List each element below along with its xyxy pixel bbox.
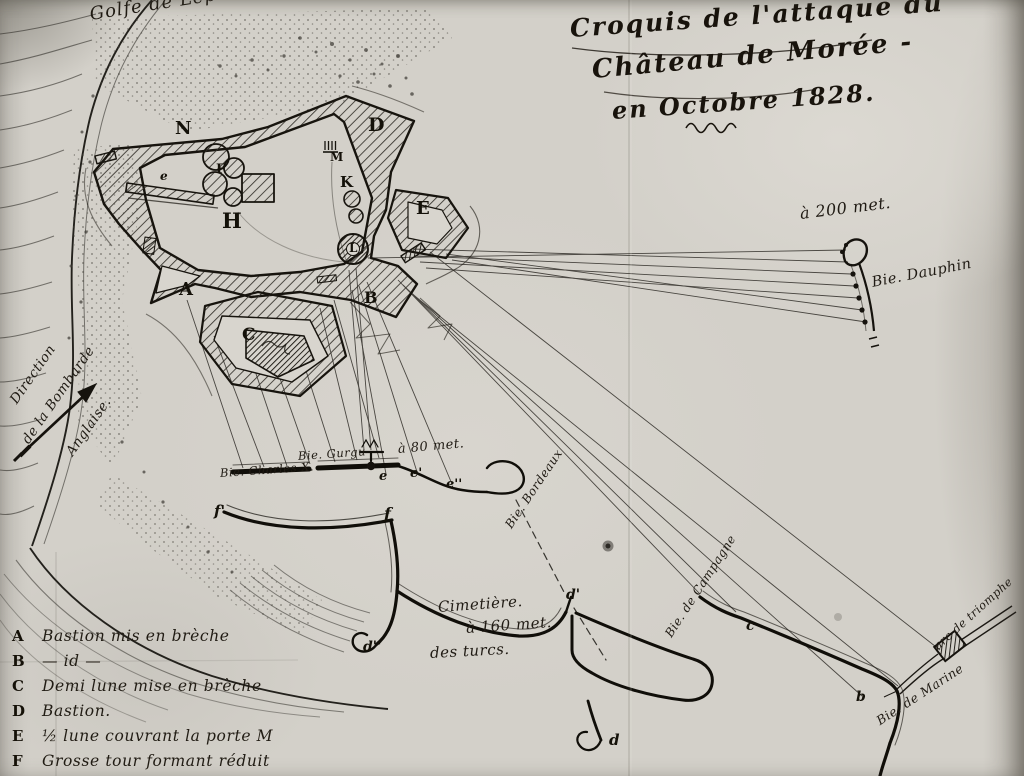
map-letter-ep: e' (410, 467, 422, 480)
trench-f (224, 512, 392, 528)
legend-letter: C (12, 677, 42, 695)
map-letter-B: B (364, 290, 378, 306)
legend-text: ½ lune couvrant la porte M (42, 727, 273, 745)
legend-letter: B (12, 652, 42, 670)
map-letter-f: f (384, 506, 391, 522)
map-letter-epp: e'' (446, 478, 462, 491)
cemetery-label-line3: des turcs. (430, 642, 510, 661)
legend-text: Bastion mis en brèche (42, 627, 230, 645)
map-letter-fp: f' (214, 504, 225, 519)
map-letter-C: C (242, 327, 256, 344)
legend-letter: D (12, 702, 42, 720)
legend-text: Demi lune mise en brèche (42, 677, 262, 695)
map-sheet: Croquis de l'attaque du Château de Morée… (0, 0, 1024, 776)
legend-row-B: B— id — (12, 651, 273, 676)
map-letter-dp: d' (566, 588, 580, 602)
map-letter-L: L (349, 242, 357, 254)
map-letter-d: d (609, 733, 620, 748)
map-letter-A: A (179, 281, 193, 299)
map-letter-e: e (160, 170, 168, 182)
battery-dauphin-symbol (840, 239, 879, 347)
legend: ABastion mis en brècheB— id —CDemi lune … (12, 626, 273, 776)
map-letter-N: N (175, 120, 191, 138)
trench-loop (572, 613, 712, 700)
legend-row-E: E½ lune couvrant la porte M (12, 726, 273, 751)
legend-row-D: DBastion. (12, 701, 273, 726)
legend-text: Grosse tour formant réduit (42, 752, 270, 770)
legend-text: Bastion. (42, 702, 111, 720)
battery-bordeaux-symbol (487, 461, 524, 493)
fortress (84, 86, 479, 396)
map-letter-K: K (340, 175, 353, 190)
trench-d (377, 521, 398, 644)
west-wall-work (143, 237, 156, 254)
legend-letter: F (12, 752, 42, 770)
map-letter-D: D (368, 116, 384, 135)
battery-gurgu-symbol (318, 465, 398, 468)
map-letter-c: c (746, 619, 755, 633)
legend-letter: E (12, 727, 42, 745)
legend-row-F: FGrosse tour formant réduit (12, 751, 273, 776)
siege-trenches (224, 440, 904, 776)
trench-c-b (700, 597, 899, 776)
map-letter-M: M (330, 151, 343, 163)
legend-row-C: CDemi lune mise en brèche (12, 676, 273, 701)
map-letter-dpp: d'' (363, 640, 381, 654)
map-letter-b: b (856, 690, 866, 704)
legend-row-A: ABastion mis en brèche (12, 626, 273, 651)
map-letter-E: E (416, 200, 430, 218)
map-letter-e: e (379, 470, 387, 483)
legend-text: — id — (42, 652, 101, 670)
map-letter-H: H (222, 210, 242, 231)
towers-k (344, 191, 363, 223)
legend-letter: A (12, 627, 42, 645)
map-letter-F: F (216, 163, 225, 176)
